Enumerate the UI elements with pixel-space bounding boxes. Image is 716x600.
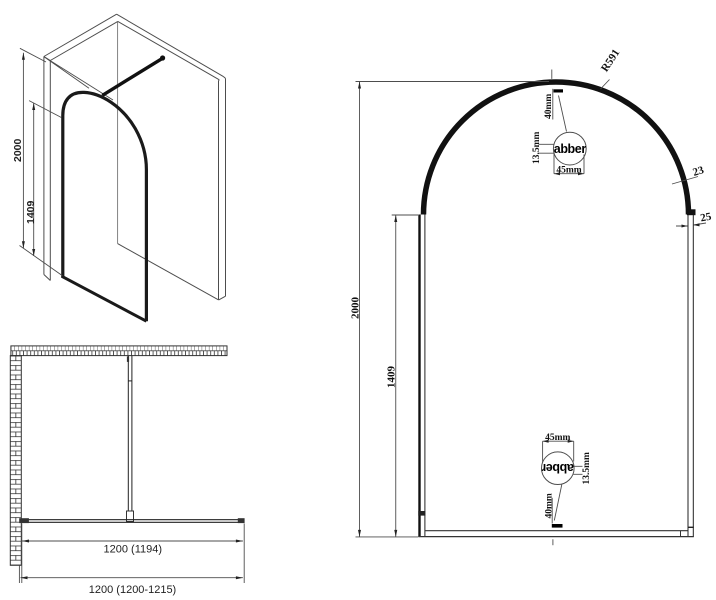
svg-text:2000: 2000	[12, 138, 24, 162]
svg-text:45mm: 45mm	[556, 165, 581, 175]
svg-text:40mm: 40mm	[544, 94, 554, 119]
svg-text:40mm: 40mm	[545, 493, 555, 518]
svg-text:13.5mm: 13.5mm	[532, 131, 542, 164]
svg-text:1200 (1194): 1200 (1194)	[104, 544, 163, 556]
svg-text:1409: 1409	[386, 366, 398, 389]
svg-text:abber: abber	[554, 142, 587, 156]
svg-text:45mm: 45mm	[545, 433, 570, 443]
svg-text:1409: 1409	[25, 200, 37, 224]
svg-text:13.5mm: 13.5mm	[582, 452, 592, 485]
svg-text:abber: abber	[541, 461, 574, 475]
svg-text:1200 (1200-1215): 1200 (1200-1215)	[89, 584, 176, 596]
svg-text:2000: 2000	[349, 297, 361, 320]
